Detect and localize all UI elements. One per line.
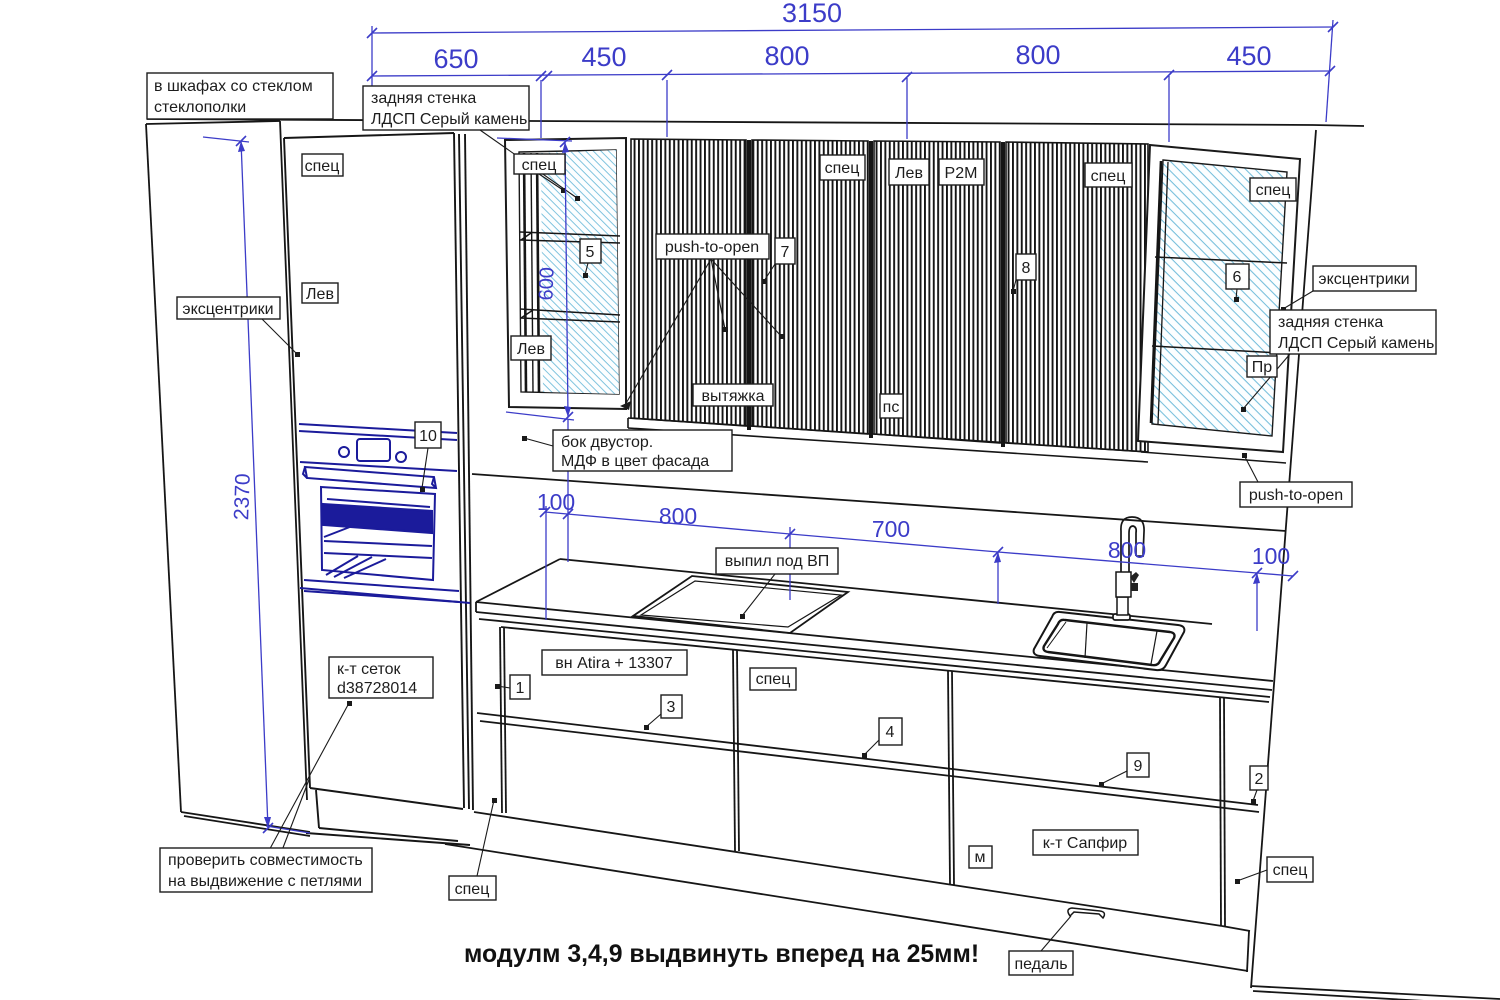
- svg-text:450: 450: [1226, 41, 1271, 71]
- svg-text:Лев: Лев: [517, 341, 545, 358]
- svg-text:спец: спец: [1091, 168, 1126, 185]
- svg-text:7: 7: [781, 244, 790, 261]
- svg-text:100: 100: [537, 489, 575, 515]
- svg-text:10: 10: [419, 428, 437, 445]
- svg-text:спец: спец: [305, 158, 340, 175]
- svg-text:1: 1: [516, 680, 525, 697]
- svg-text:800: 800: [764, 41, 809, 71]
- svg-text:8: 8: [1022, 260, 1031, 277]
- svg-text:вытяжка: вытяжка: [702, 388, 765, 405]
- svg-text:9: 9: [1134, 758, 1143, 775]
- svg-text:модулм 3,4,9 выдвинуть вперед: модулм 3,4,9 выдвинуть вперед на 25мм!: [464, 941, 979, 968]
- svg-text:Пр: Пр: [1252, 359, 1273, 376]
- svg-text:800: 800: [1015, 40, 1060, 70]
- svg-text:800: 800: [1108, 537, 1146, 563]
- svg-text:в шкафах со стеклом: в шкафах со стеклом: [154, 78, 313, 95]
- svg-text:push-to-open: push-to-open: [665, 239, 759, 256]
- svg-text:пс: пс: [883, 399, 900, 416]
- svg-text:спец: спец: [1273, 862, 1308, 879]
- svg-text:спец: спец: [455, 881, 490, 898]
- svg-text:4: 4: [886, 724, 895, 741]
- svg-text:педаль: педаль: [1014, 956, 1067, 973]
- svg-text:ЛДСП Серый камень: ЛДСП Серый камень: [371, 111, 527, 128]
- svg-text:эксцентрики: эксцентрики: [182, 301, 273, 318]
- svg-text:6: 6: [1233, 269, 1242, 286]
- svg-text:бок двустор.: бок двустор.: [561, 434, 653, 451]
- svg-text:спец: спец: [825, 160, 860, 177]
- svg-text:выпил под ВП: выпил под ВП: [725, 553, 830, 570]
- svg-text:эксцентрики: эксцентрики: [1318, 271, 1409, 288]
- svg-text:450: 450: [581, 42, 626, 72]
- svg-text:задняя стенка: задняя стенка: [371, 90, 476, 107]
- svg-text:вн Atira + 13307: вн Atira + 13307: [555, 655, 673, 672]
- svg-text:2: 2: [1255, 771, 1264, 788]
- svg-text:d38728014: d38728014: [337, 680, 417, 697]
- svg-text:стеклополки: стеклополки: [154, 99, 246, 116]
- svg-text:700: 700: [872, 516, 910, 542]
- svg-text:3: 3: [667, 699, 676, 716]
- svg-text:push-to-open: push-to-open: [1249, 487, 1343, 504]
- svg-text:650: 650: [433, 44, 478, 74]
- svg-text:спец: спец: [1256, 182, 1291, 199]
- svg-text:5: 5: [586, 244, 595, 261]
- svg-text:к-т сеток: к-т сеток: [337, 661, 402, 678]
- svg-text:спец: спец: [522, 157, 557, 174]
- svg-text:Лев: Лев: [895, 165, 923, 182]
- svg-text:МДФ в цвет фасада: МДФ в цвет фасада: [561, 453, 709, 470]
- svg-text:2370: 2370: [230, 473, 255, 520]
- svg-text:600: 600: [535, 267, 558, 301]
- svg-text:проверить совместимость: проверить совместимость: [168, 852, 363, 869]
- svg-text:100: 100: [1252, 543, 1290, 569]
- svg-text:спец: спец: [756, 671, 791, 688]
- svg-text:3150: 3150: [782, 0, 842, 28]
- svg-text:Лев: Лев: [306, 286, 334, 303]
- svg-text:к-т Сапфир: к-т Сапфир: [1043, 835, 1128, 852]
- svg-text:800: 800: [659, 503, 697, 529]
- svg-text:на выдвижение с петлями: на выдвижение с петлями: [168, 873, 362, 890]
- svg-text:задняя стенка: задняя стенка: [1278, 314, 1383, 331]
- svg-text:м: м: [975, 849, 986, 866]
- svg-text:P2M: P2M: [945, 165, 978, 182]
- svg-text:ЛДСП Серый камень: ЛДСП Серый камень: [1278, 335, 1434, 352]
